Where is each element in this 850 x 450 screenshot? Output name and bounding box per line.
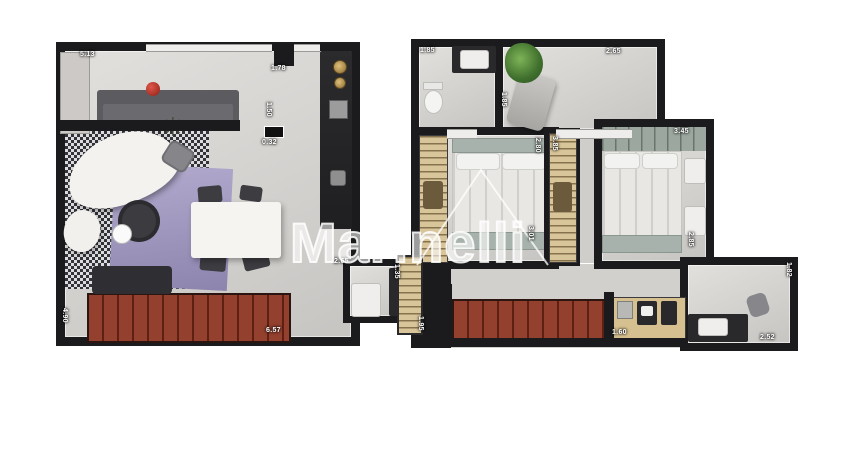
wardrobe-item [553,182,572,212]
dim-label: 4.90 [61,308,68,323]
kitchen-sink [333,60,347,74]
plant [505,43,543,83]
toilet-bowl [424,90,443,114]
passage-door [264,126,284,138]
watermark: Marinelli [290,210,590,275]
monitor [698,318,728,336]
nightstand [684,158,706,184]
wc-sink [351,283,381,317]
dim-label: 1.60 [612,329,627,336]
dim-label: 1.85 [500,92,507,107]
kitchen-door-gap [294,44,320,52]
dim-label: 2.52 [760,334,775,341]
dim-label: 5.13 [80,51,95,58]
floorplan-render: ✳ 5.13 1.78 1.50 0.32 4.90 6.57 2.65 1.3… [0,0,850,450]
kitchen-appliance [330,170,346,186]
bench [92,266,172,294]
laundry-appliance [617,301,633,319]
lower-deck [87,293,291,343]
dim-label: 1.85 [420,47,435,54]
living-divider-wall [56,120,240,131]
upper-deck [452,299,614,343]
dim-label: 2.85 [687,232,694,247]
window-top [146,44,272,52]
dim-label: 6.57 [266,327,281,334]
corridor-bottom-wall [440,338,688,347]
dim-label: 0.32 [262,139,277,146]
bath-door-gap [447,129,477,139]
bed2-pillow [642,153,678,169]
dim-label: 1.82 [785,262,792,277]
toilet-tank [423,82,443,90]
kitchen-sink [334,77,346,89]
dim-label: 2.80 [534,138,541,153]
side-plate [112,224,132,244]
bed2-pillow [604,153,640,169]
washer [637,301,657,325]
dressing-door-gap [556,129,632,139]
dim-label: 1.95 [417,316,424,331]
bath-sink [460,50,489,69]
bed2-runner [602,235,682,253]
cooktop [329,100,348,119]
laundry-wall [604,292,614,344]
red-vase [146,82,160,96]
dining-chair [239,185,263,203]
dim-label: 1.78 [271,65,286,72]
corridor-left-wall [443,284,452,344]
dim-label: 1.50 [265,102,272,117]
dining-table [191,202,281,258]
wall-pillar [274,42,294,66]
dim-label: 3.45 [674,128,689,135]
dim-label: 2.65 [606,48,621,55]
dim-label: 3.85 [551,136,558,151]
laundry-appliance [661,301,677,325]
